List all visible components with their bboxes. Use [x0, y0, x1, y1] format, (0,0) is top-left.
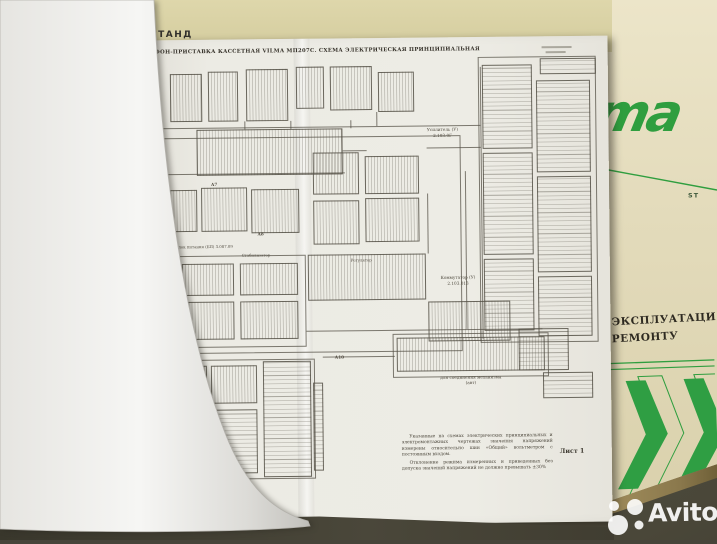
bus-line [323, 356, 395, 357]
faded-text-smudge [546, 51, 566, 53]
faded-text-smudge [542, 46, 572, 48]
avito-watermark: Avito [604, 494, 716, 540]
schematic-notes: Указанные на схемах электрических принци… [402, 432, 553, 474]
stereo-text-fragment: ST [688, 192, 699, 199]
avito-dots-icon [604, 494, 650, 540]
module-outline [478, 56, 599, 343]
avito-wordmark: Avito [648, 497, 717, 527]
curled-page [0, 0, 320, 540]
sheet-number-label: Лист 1 [560, 448, 585, 455]
component-table [378, 72, 414, 112]
bus-line [376, 112, 377, 126]
component-table [543, 372, 593, 399]
manual-cover: ma ST О ЭКСПЛУАТАЦИ О РЕМОНТУ [594, 0, 717, 540]
cover-title-line1: О ЭКСПЛУАТАЦИ [598, 311, 717, 329]
component-table [330, 66, 372, 110]
photo-of-service-manual: ma ST О ЭКСПЛУАТАЦИ О РЕМОНТУ СТАНД ТОФ [0, 0, 717, 540]
bus-line [350, 120, 351, 128]
